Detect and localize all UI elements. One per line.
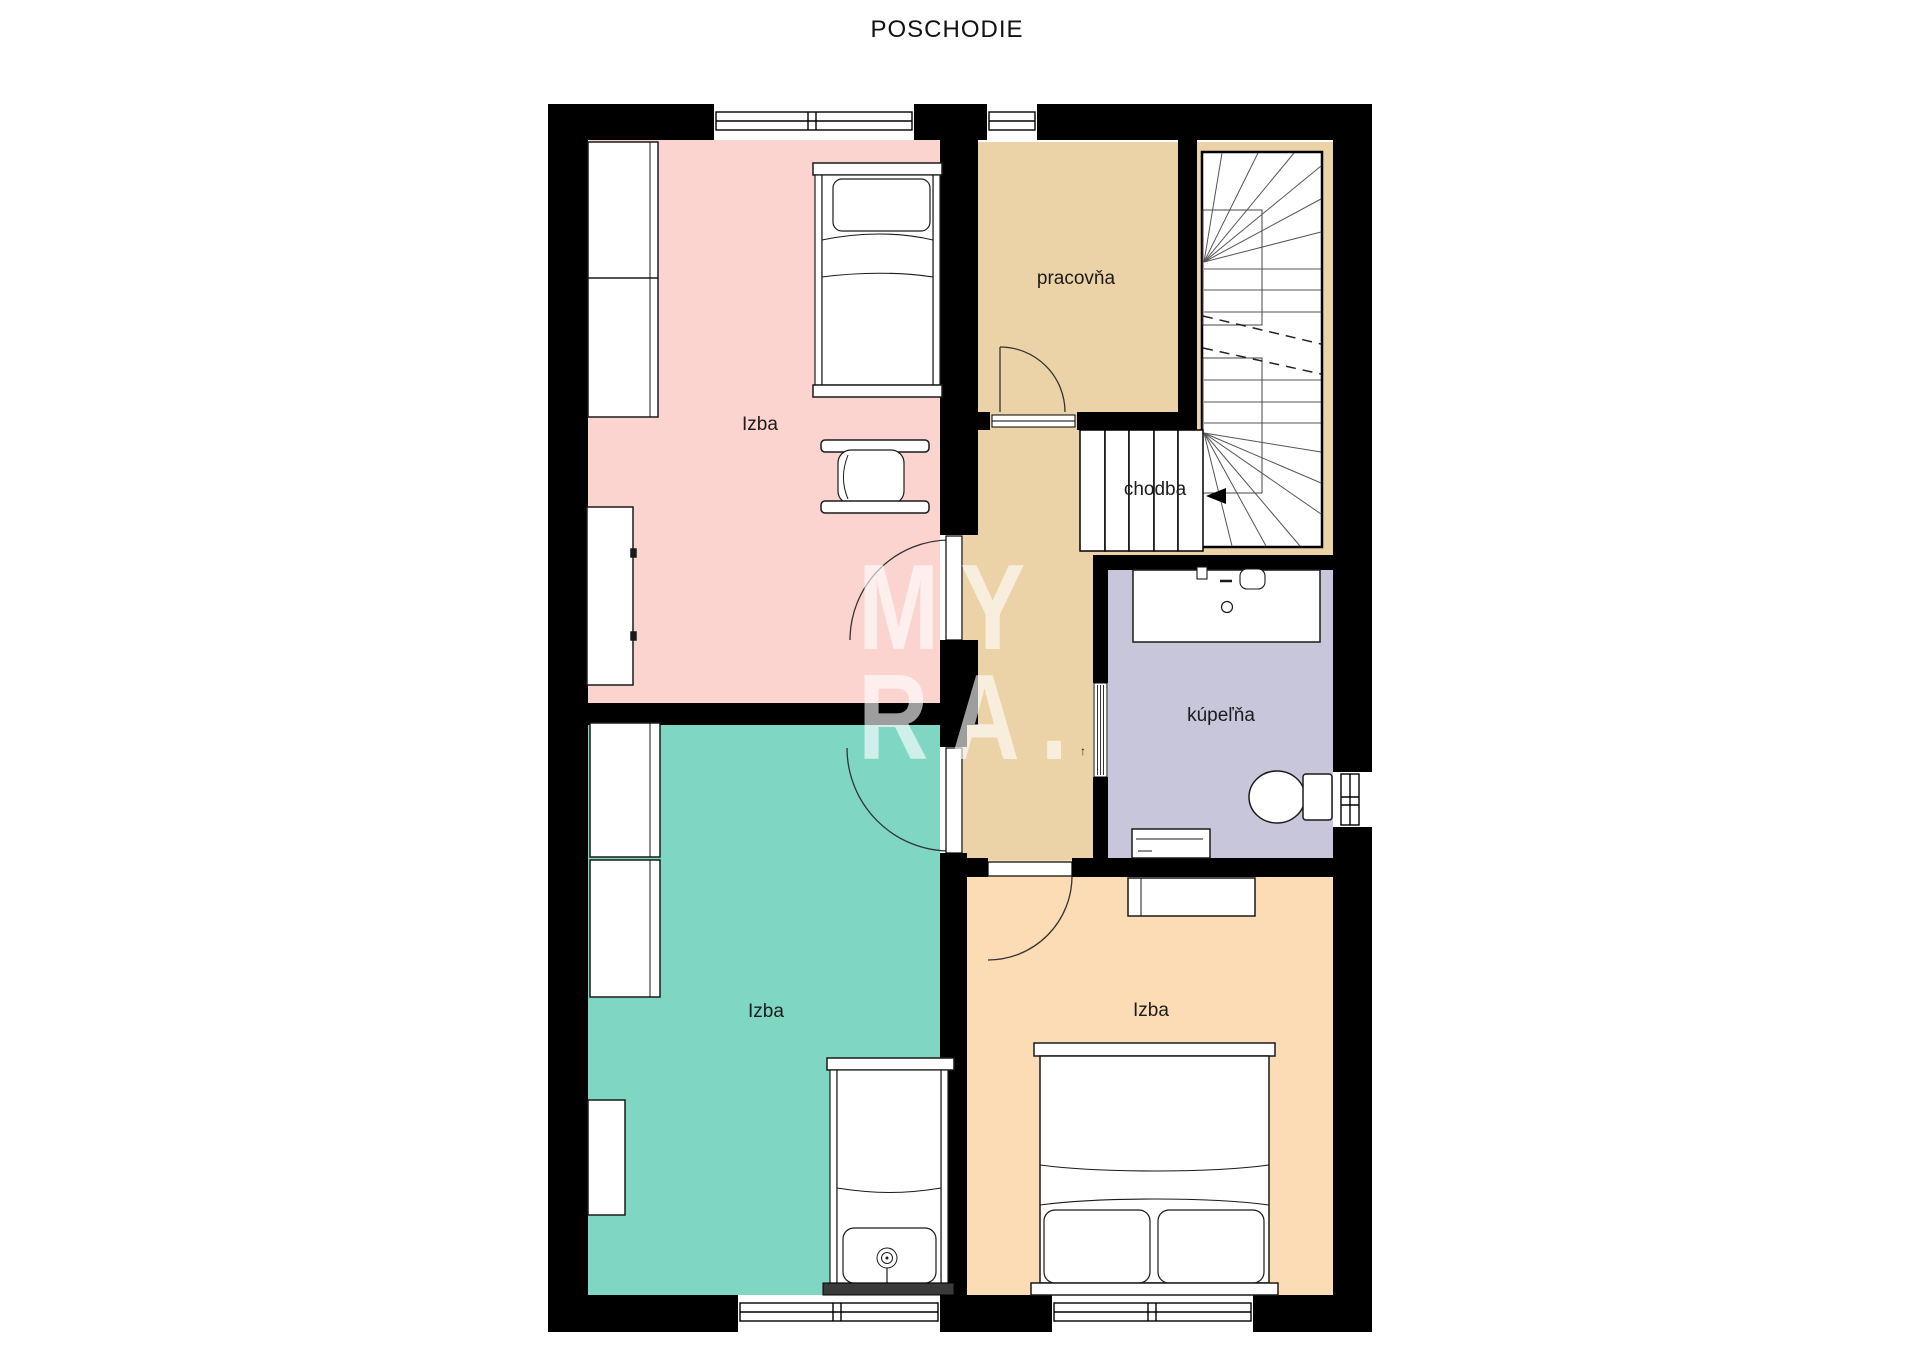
double-bed-bedroom3 <box>1031 1043 1278 1295</box>
room-label-office: pracovňa <box>1016 268 1136 290</box>
watermark-line1: MY <box>858 552 1088 662</box>
wall-hall-bedroom3-left <box>967 858 988 877</box>
wardrobe-bedroom2-upper <box>590 723 660 857</box>
closet-bedroom1 <box>587 507 636 685</box>
wall-bottom-3 <box>1253 1295 1372 1332</box>
wall-office-bottom-right <box>1077 412 1197 430</box>
wall-bottom-1 <box>548 1295 738 1332</box>
toilet <box>1249 771 1332 823</box>
window-bathroom-right <box>1333 772 1372 827</box>
wall-left <box>548 104 588 1332</box>
wall-right-upper <box>1333 104 1372 772</box>
page-title: POSCHODIE <box>810 16 1084 44</box>
window-office-top <box>987 104 1037 140</box>
single-bed-bedroom2 <box>823 1058 954 1295</box>
cabinet-bedroom3 <box>1128 878 1255 916</box>
window-bedroom2-bottom <box>738 1295 940 1332</box>
wall-bathroom-left-upper <box>1093 570 1108 683</box>
room-label-hallway: chodba <box>1105 479 1205 501</box>
wardrobe-bedroom2-lower <box>590 860 660 997</box>
wall-top-3 <box>1037 104 1372 140</box>
wall-bathroom-bottom <box>1072 858 1333 877</box>
wall-top-2 <box>914 104 987 140</box>
window-bedroom3-bottom <box>1052 1295 1253 1332</box>
floor-plan-page: POSCHODIE Izba pracovňa chodba kúpeľňa I… <box>0 0 1920 1358</box>
watermark-line2: RA. <box>858 662 1088 772</box>
single-bed-bedroom1 <box>813 163 942 397</box>
room-label-bedroom-bottom-right: Izba <box>1101 1000 1201 1022</box>
watermark: MY RA. <box>858 552 1088 772</box>
closet-bedroom2 <box>588 1100 625 1215</box>
window-bedroom1-top <box>714 104 914 140</box>
room-label-bedroom-bottom-left: Izba <box>716 1001 816 1023</box>
room-label-bedroom-top-left: Izba <box>710 414 810 436</box>
wardrobe-bedroom1 <box>588 142 658 417</box>
wall-bathroom-left-lower <box>1093 777 1108 860</box>
bathroom-sink-counter <box>1133 567 1320 642</box>
wall-bathroom-top <box>1093 555 1333 570</box>
door-bathroom-sliding <box>1094 683 1107 777</box>
room-label-bathroom: kúpeľňa <box>1161 705 1281 727</box>
wall-bottom-2 <box>940 1295 1052 1332</box>
washing-machine <box>1132 829 1210 858</box>
wall-bedroom1-hall-upper <box>940 140 978 535</box>
wall-office-bottom-left <box>978 412 990 430</box>
wall-right-lower <box>1333 827 1372 1332</box>
wall-office-stairs <box>1178 140 1197 412</box>
